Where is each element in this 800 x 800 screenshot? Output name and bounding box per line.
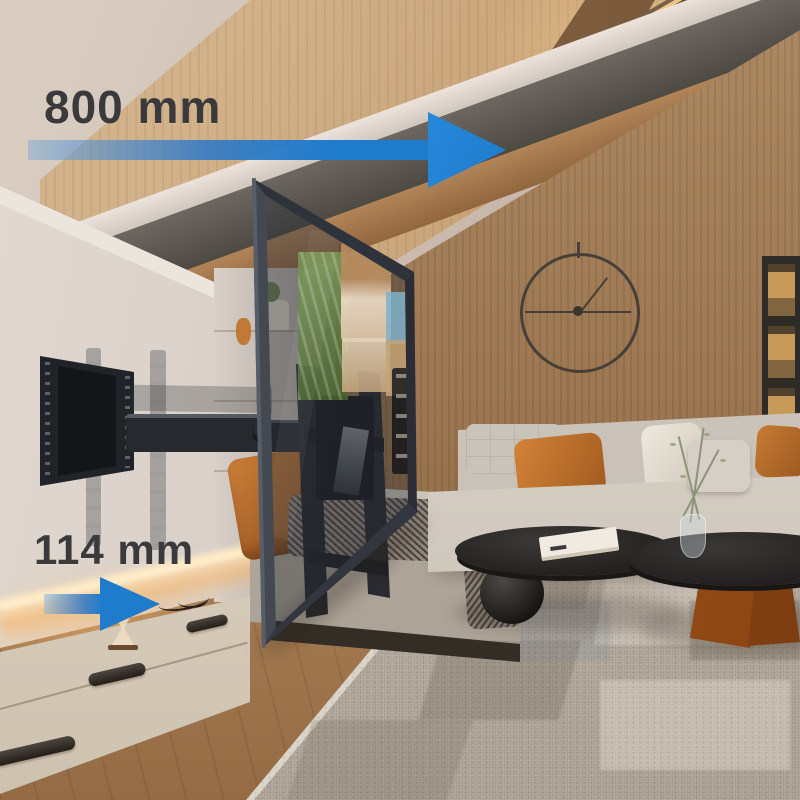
extension-measurement-label: 800 mm <box>44 80 221 134</box>
plant-leaf <box>680 475 686 478</box>
depth-arrow-icon <box>44 594 102 614</box>
glass-vase <box>680 514 706 558</box>
decor-vase-orange <box>236 318 251 345</box>
mount-screw-holes <box>45 362 50 482</box>
plant-leaf <box>670 443 676 446</box>
plant-leaf <box>720 459 726 462</box>
extension-arrow-icon <box>28 140 430 160</box>
hourglass-frame <box>108 645 138 650</box>
plant-stem <box>682 449 719 517</box>
product-photo-tv-mount: 800 mm 114 mm <box>0 0 800 800</box>
ghost-arm <box>132 385 272 413</box>
plant-leaf <box>704 433 710 436</box>
mount-arm-segment <box>126 414 266 452</box>
book-title-mark <box>550 545 566 551</box>
clock-center <box>573 306 583 316</box>
wall-clock <box>520 253 640 373</box>
orange-pillow <box>754 424 800 479</box>
clock-stem <box>577 242 580 258</box>
screen-art-beach <box>342 338 390 392</box>
screen-art-sky <box>386 292 406 344</box>
depth-measurement-label: 114 mm <box>34 526 194 574</box>
